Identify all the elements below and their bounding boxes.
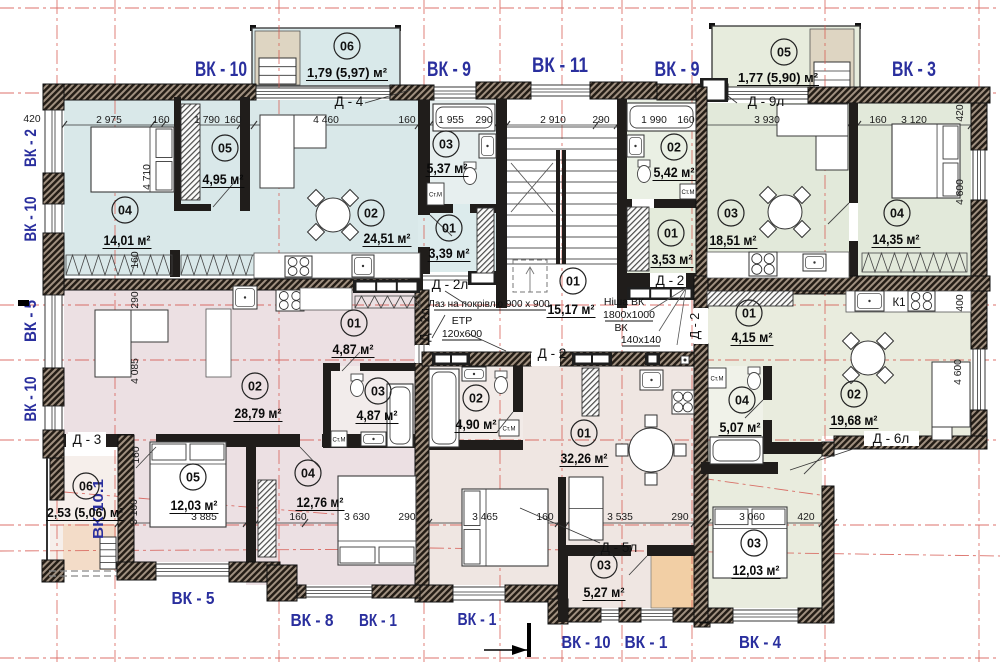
svg-text:15,17 м²: 15,17 м² — [548, 302, 595, 317]
svg-text:18,51 м²: 18,51 м² — [710, 233, 757, 248]
svg-text:Ст.М: Ст.М — [502, 426, 515, 432]
svg-text:03: 03 — [371, 385, 385, 399]
svg-text:ВК: ВК — [614, 322, 628, 334]
svg-text:01: 01 — [742, 307, 756, 321]
svg-text:160: 160 — [131, 446, 142, 463]
svg-text:12,03 м²: 12,03 м² — [171, 498, 218, 513]
svg-text:4 600: 4 600 — [953, 359, 964, 385]
svg-text:5,37 м²: 5,37 м² — [427, 161, 468, 176]
svg-text:Д - 9л: Д - 9л — [748, 94, 785, 109]
svg-text:04: 04 — [890, 207, 904, 221]
svg-text:04: 04 — [118, 204, 132, 218]
svg-text:4 710: 4 710 — [142, 164, 153, 190]
svg-text:5,07 м²: 5,07 м² — [720, 420, 761, 435]
svg-text:160: 160 — [869, 115, 886, 126]
svg-text:160: 160 — [289, 512, 306, 523]
svg-text:160: 160 — [677, 115, 694, 126]
svg-text:4,15 м²: 4,15 м² — [732, 330, 773, 345]
svg-text:ВК - 8: ВК - 8 — [291, 610, 334, 630]
svg-text:1 790: 1 790 — [194, 115, 220, 126]
svg-text:Лаз на покрівлю 900 х 900: Лаз на покрівлю 900 х 900 — [428, 299, 550, 310]
svg-text:290: 290 — [475, 115, 492, 126]
svg-text:3 535: 3 535 — [607, 512, 633, 523]
svg-text:4,95 м²: 4,95 м² — [203, 172, 244, 187]
svg-text:ВК - 9: ВК - 9 — [427, 58, 471, 81]
svg-text:ВК - 10: ВК - 10 — [195, 58, 247, 81]
svg-text:Ст.М: Ст.М — [681, 190, 694, 196]
svg-text:01: 01 — [664, 227, 678, 241]
svg-text:3 630: 3 630 — [344, 512, 370, 523]
svg-text:К1: К1 — [892, 297, 905, 309]
svg-text:05: 05 — [777, 46, 791, 60]
svg-text:14,35 м²: 14,35 м² — [873, 232, 920, 247]
svg-text:02: 02 — [248, 380, 262, 394]
svg-text:01: 01 — [566, 275, 580, 289]
svg-text:Д - 2л: Д - 2л — [418, 308, 432, 342]
svg-text:ВК - 1: ВК - 1 — [625, 632, 668, 652]
svg-text:420: 420 — [23, 114, 40, 125]
svg-text:3 885: 3 885 — [191, 512, 217, 523]
svg-text:01: 01 — [577, 427, 591, 441]
svg-text:4,90 м²: 4,90 м² — [456, 417, 497, 432]
svg-text:Д - 2л: Д - 2л — [432, 277, 469, 292]
svg-text:1,77 (5,90) м²: 1,77 (5,90) м² — [738, 70, 819, 85]
svg-text:3 930: 3 930 — [754, 115, 780, 126]
svg-text:120х600: 120х600 — [442, 328, 482, 340]
svg-text:ВК - 1: ВК - 1 — [458, 609, 497, 629]
svg-text:5,27 м²: 5,27 м² — [584, 585, 625, 600]
svg-text:Д - 3: Д - 3 — [73, 432, 102, 447]
svg-text:1,79 (5,97) м²: 1,79 (5,97) м² — [307, 65, 388, 80]
svg-text:Ніша ВК: Ніша ВК — [604, 296, 645, 308]
svg-text:06: 06 — [340, 40, 354, 54]
svg-text:Д - 2: Д - 2 — [656, 273, 685, 288]
svg-text:01: 01 — [442, 222, 456, 236]
svg-text:Д - 4: Д - 4 — [335, 94, 364, 109]
svg-text:ВК - 2: ВК - 2 — [22, 129, 40, 167]
svg-text:12,76 м²: 12,76 м² — [297, 495, 344, 510]
svg-text:Д - 2: Д - 2 — [538, 346, 567, 361]
svg-text:28,79 м²: 28,79 м² — [235, 406, 282, 421]
svg-text:03: 03 — [439, 138, 453, 152]
svg-text:02: 02 — [667, 141, 681, 155]
svg-text:4,87 м²: 4,87 м² — [357, 408, 398, 423]
svg-text:420: 420 — [955, 104, 966, 121]
svg-text:Д - 6л: Д - 6л — [873, 431, 910, 446]
svg-text:420: 420 — [797, 512, 814, 523]
svg-text:2 910: 2 910 — [540, 115, 566, 126]
svg-text:3,53 м²: 3,53 м² — [652, 252, 693, 267]
svg-text:160: 160 — [536, 512, 553, 523]
svg-text:4 460: 4 460 — [313, 115, 339, 126]
svg-text:04: 04 — [735, 394, 749, 408]
svg-text:ВК - 1: ВК - 1 — [359, 610, 397, 630]
svg-text:04: 04 — [301, 467, 315, 481]
svg-text:24,51 м²: 24,51 м² — [364, 231, 411, 246]
svg-text:14,01 м²: 14,01 м² — [104, 233, 151, 248]
svg-text:290: 290 — [671, 512, 688, 523]
svg-text:03: 03 — [747, 537, 761, 551]
svg-text:ВК - 3: ВК - 3 — [892, 58, 936, 81]
svg-text:12,03 м²: 12,03 м² — [733, 563, 780, 578]
svg-text:05: 05 — [218, 142, 232, 156]
svg-text:ВК - 5: ВК - 5 — [22, 300, 40, 342]
svg-text:160: 160 — [130, 251, 141, 268]
svg-text:ЕТР: ЕТР — [452, 315, 472, 327]
svg-text:ВК - 5: ВК - 5 — [172, 588, 215, 608]
svg-text:140х140: 140х140 — [621, 334, 661, 346]
svg-text:19,68 м²: 19,68 м² — [831, 413, 878, 428]
svg-text:03: 03 — [597, 559, 611, 573]
svg-text:2,53 (5,06) м²: 2,53 (5,06) м² — [47, 505, 124, 520]
svg-text:32,26 м²: 32,26 м² — [561, 451, 608, 466]
svg-text:02: 02 — [847, 388, 861, 402]
svg-text:05: 05 — [186, 471, 200, 485]
svg-text:400: 400 — [955, 294, 966, 311]
svg-text:3 465: 3 465 — [472, 512, 498, 523]
svg-text:03: 03 — [724, 207, 738, 221]
svg-text:ВК - 10: ВК - 10 — [22, 377, 40, 422]
svg-text:2 975: 2 975 — [96, 115, 122, 126]
svg-text:Д - 5л: Д - 5л — [601, 540, 638, 555]
svg-text:3,39 м²: 3,39 м² — [429, 246, 470, 261]
svg-text:1800х1000: 1800х1000 — [603, 309, 655, 321]
svg-text:Ст.М: Ст.М — [332, 437, 345, 443]
svg-text:Ст.М: Ст.М — [429, 192, 442, 198]
svg-text:02: 02 — [469, 392, 483, 406]
svg-text:4 600: 4 600 — [955, 179, 966, 205]
svg-text:290: 290 — [130, 291, 141, 308]
svg-text:ВК - 10: ВК - 10 — [562, 632, 611, 652]
svg-text:3 060: 3 060 — [739, 512, 765, 523]
svg-text:290: 290 — [592, 115, 609, 126]
svg-text:160: 160 — [398, 115, 415, 126]
svg-text:4 085: 4 085 — [130, 358, 141, 384]
svg-text:1 955: 1 955 — [438, 115, 464, 126]
svg-text:ВК - 10: ВК - 10 — [22, 197, 40, 242]
svg-text:160: 160 — [152, 115, 169, 126]
svg-text:01: 01 — [347, 317, 361, 331]
svg-text:4,87 м²: 4,87 м² — [333, 342, 374, 357]
svg-text:290: 290 — [398, 512, 415, 523]
svg-text:06: 06 — [79, 480, 93, 494]
svg-text:5,42 м²: 5,42 м² — [654, 165, 695, 180]
svg-text:160: 160 — [224, 115, 241, 126]
svg-text:Д - 2: Д - 2 — [688, 313, 702, 340]
svg-text:3 120: 3 120 — [901, 115, 927, 126]
svg-text:ВК - 11: ВК - 11 — [532, 54, 588, 77]
svg-text:ВК - 9: ВК - 9 — [655, 58, 700, 81]
svg-text:1 990: 1 990 — [641, 115, 667, 126]
svg-text:3 160: 3 160 — [129, 499, 140, 525]
svg-text:02: 02 — [364, 207, 378, 221]
svg-text:ВК - 4: ВК - 4 — [739, 632, 781, 652]
svg-text:Ст.М: Ст.М — [710, 376, 723, 382]
